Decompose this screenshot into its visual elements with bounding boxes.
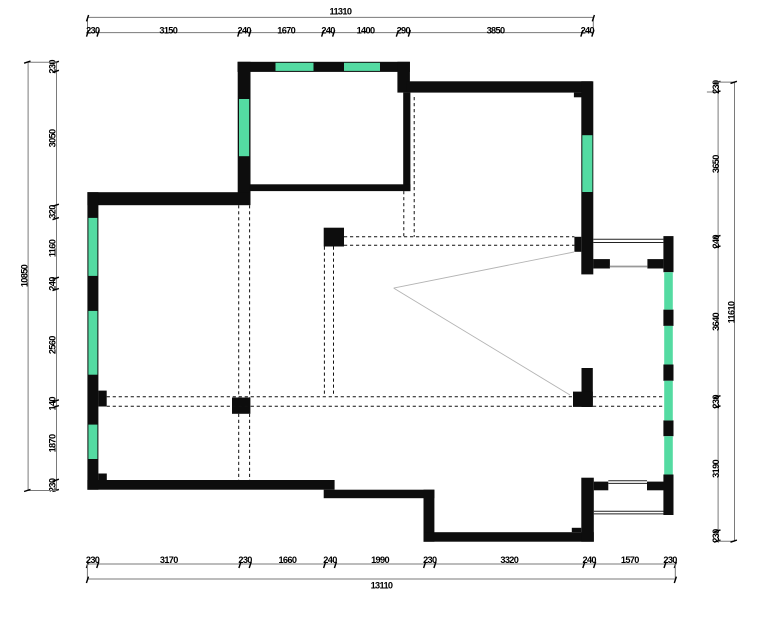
svg-text:3150: 3150 bbox=[159, 26, 177, 36]
svg-text:240: 240 bbox=[581, 26, 595, 36]
svg-text:3650: 3650 bbox=[711, 155, 721, 173]
svg-text:230: 230 bbox=[86, 26, 100, 36]
svg-text:2560: 2560 bbox=[47, 336, 57, 354]
svg-text:240: 240 bbox=[238, 26, 252, 36]
svg-text:230: 230 bbox=[423, 555, 437, 565]
svg-text:240: 240 bbox=[47, 277, 57, 291]
svg-text:3640: 3640 bbox=[711, 312, 721, 330]
svg-text:1160: 1160 bbox=[47, 239, 57, 257]
svg-text:11310: 11310 bbox=[330, 6, 352, 16]
svg-text:320: 320 bbox=[47, 205, 57, 219]
svg-text:240: 240 bbox=[711, 235, 721, 249]
svg-text:10850: 10850 bbox=[20, 264, 30, 287]
svg-text:1570: 1570 bbox=[621, 555, 639, 565]
svg-text:3190: 3190 bbox=[711, 459, 721, 477]
svg-text:3850: 3850 bbox=[487, 26, 505, 36]
svg-text:1670: 1670 bbox=[277, 26, 295, 36]
svg-text:1870: 1870 bbox=[47, 434, 57, 452]
svg-text:13110: 13110 bbox=[371, 581, 393, 591]
svg-text:140: 140 bbox=[47, 397, 57, 411]
svg-text:3320: 3320 bbox=[500, 555, 518, 565]
svg-text:3050: 3050 bbox=[47, 129, 57, 147]
svg-text:3170: 3170 bbox=[160, 555, 178, 565]
svg-text:290: 290 bbox=[397, 26, 411, 36]
svg-text:230: 230 bbox=[711, 395, 721, 409]
svg-text:240: 240 bbox=[323, 555, 337, 565]
svg-text:230: 230 bbox=[86, 555, 100, 565]
svg-text:1660: 1660 bbox=[278, 555, 296, 565]
svg-text:240: 240 bbox=[583, 555, 597, 565]
svg-text:230: 230 bbox=[238, 555, 252, 565]
svg-text:1400: 1400 bbox=[357, 26, 375, 36]
svg-text:240: 240 bbox=[321, 26, 335, 36]
svg-text:1990: 1990 bbox=[371, 555, 389, 565]
svg-text:230: 230 bbox=[663, 555, 677, 565]
svg-text:11610: 11610 bbox=[727, 301, 737, 323]
